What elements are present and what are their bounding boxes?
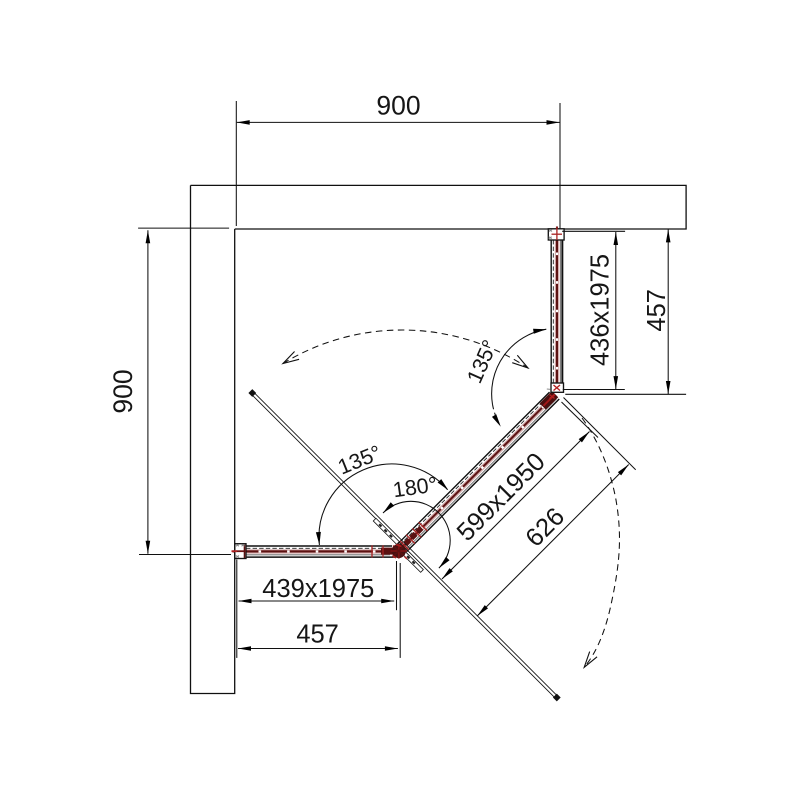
svg-text:436x1975: 436x1975 [587, 254, 615, 366]
svg-text:439x1975: 439x1975 [262, 575, 374, 603]
svg-text:457: 457 [296, 621, 339, 649]
svg-text:900: 900 [108, 369, 138, 413]
svg-text:900: 900 [376, 91, 420, 121]
svg-text:457: 457 [643, 289, 671, 332]
